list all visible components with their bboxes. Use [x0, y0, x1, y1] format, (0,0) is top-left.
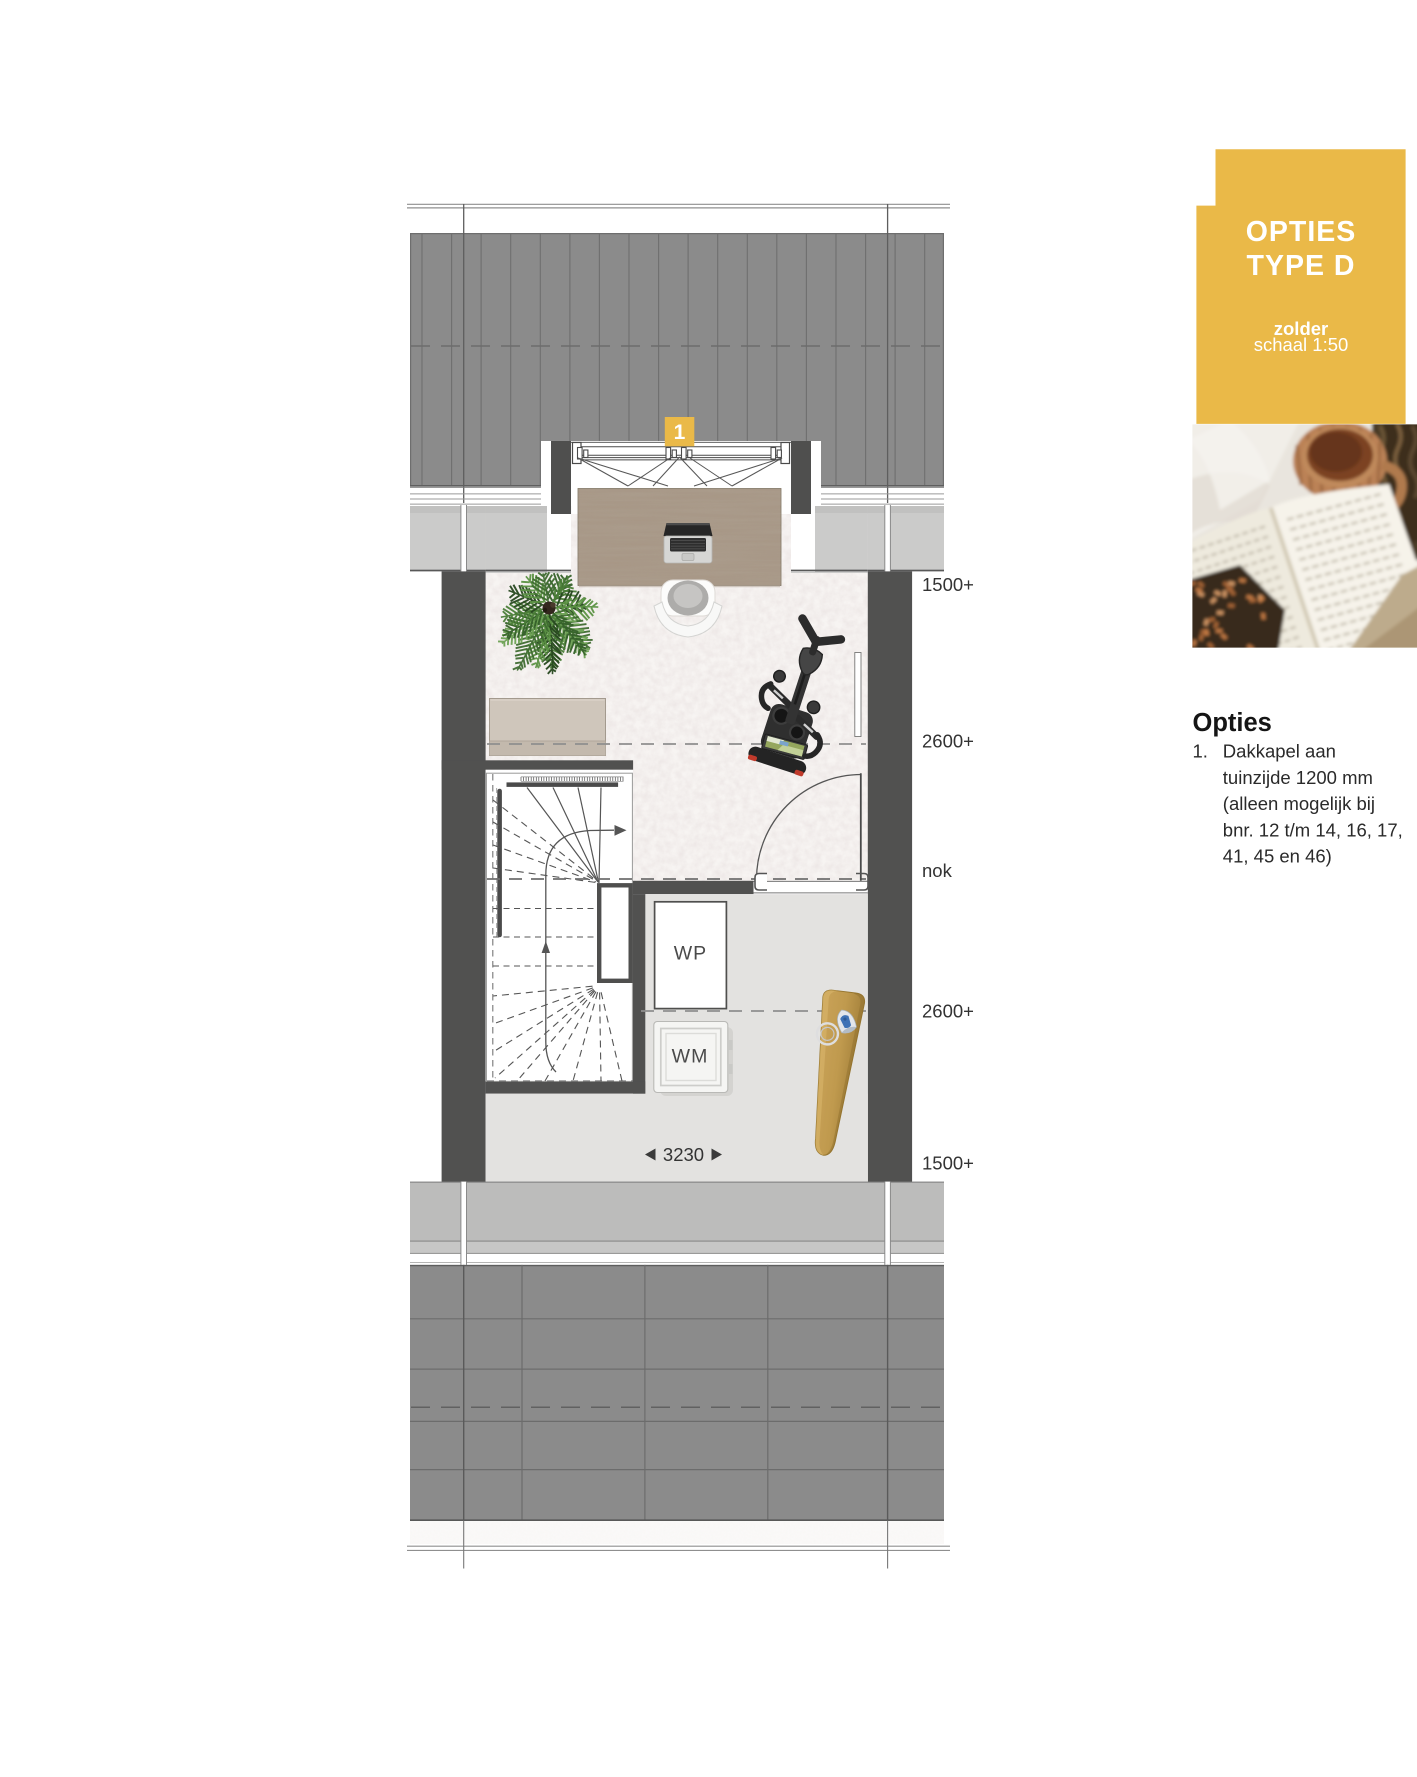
svg-text:1.: 1. — [1193, 741, 1208, 762]
svg-text:tuinzijde 1200 mm: tuinzijde 1200 mm — [1223, 767, 1373, 788]
svg-text:1500+: 1500+ — [922, 574, 974, 595]
svg-text:nok: nok — [922, 860, 953, 881]
svg-text:Dakkapel aan: Dakkapel aan — [1223, 741, 1336, 762]
svg-text:2600+: 2600+ — [922, 731, 974, 752]
svg-text:OPTIES: OPTIES — [1246, 216, 1357, 248]
svg-text:3230: 3230 — [663, 1144, 704, 1165]
svg-text:Opties: Opties — [1193, 709, 1272, 737]
svg-text:1: 1 — [674, 421, 686, 444]
svg-text:TYPE D: TYPE D — [1247, 250, 1356, 282]
svg-text:WP: WP — [674, 943, 707, 965]
svg-text:(alleen mogelijk bij: (alleen mogelijk bij — [1223, 793, 1375, 814]
svg-text:WM: WM — [672, 1046, 709, 1068]
svg-text:41, 45 en 46): 41, 45 en 46) — [1223, 846, 1332, 867]
svg-text:schaal 1:50: schaal 1:50 — [1254, 334, 1349, 355]
svg-text:bnr. 12 t/m 14, 16, 17,: bnr. 12 t/m 14, 16, 17, — [1223, 819, 1403, 840]
svg-text:1500+: 1500+ — [922, 1153, 974, 1174]
svg-text:2600+: 2600+ — [922, 1001, 974, 1022]
